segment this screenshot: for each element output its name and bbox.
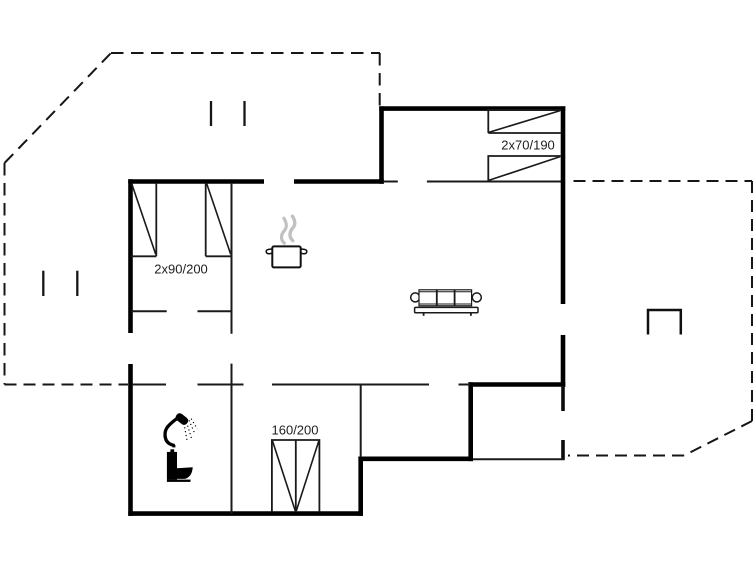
svg-text:2x90/200: 2x90/200 <box>154 262 208 277</box>
svg-text:2x70/190: 2x70/190 <box>501 138 555 153</box>
svg-text:160/200: 160/200 <box>272 422 319 437</box>
